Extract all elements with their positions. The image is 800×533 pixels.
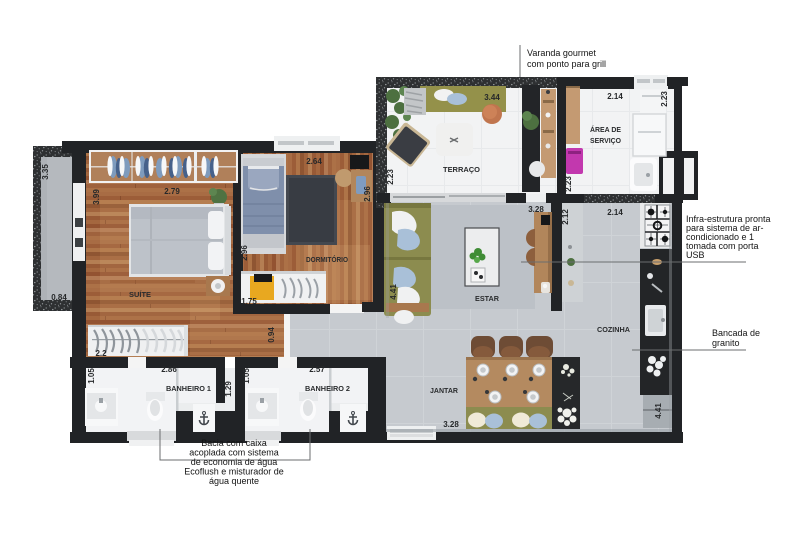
svg-text:2.86: 2.86 bbox=[161, 365, 177, 374]
svg-text:3.28: 3.28 bbox=[528, 205, 544, 214]
svg-text:acoplada com sistema: acoplada com sistema bbox=[189, 448, 279, 458]
svg-text:2.96: 2.96 bbox=[363, 186, 372, 202]
svg-text:4.41: 4.41 bbox=[389, 284, 398, 300]
svg-text:JANTAR: JANTAR bbox=[430, 386, 459, 395]
svg-text:2.57: 2.57 bbox=[309, 365, 325, 374]
svg-text:Bancada de: Bancada de bbox=[712, 328, 760, 338]
svg-text:3.99: 3.99 bbox=[92, 189, 101, 205]
svg-text:USB: USB bbox=[686, 250, 705, 260]
svg-text:SERVIÇO: SERVIÇO bbox=[590, 136, 621, 145]
svg-text:4.41: 4.41 bbox=[654, 403, 663, 419]
svg-text:2.79: 2.79 bbox=[164, 187, 180, 196]
svg-text:2.96: 2.96 bbox=[240, 245, 249, 261]
svg-text:ESTAR: ESTAR bbox=[475, 294, 500, 303]
svg-text:COZINHA: COZINHA bbox=[597, 325, 631, 334]
svg-text:com ponto para grill: com ponto para grill bbox=[527, 59, 606, 69]
svg-text:2.2: 2.2 bbox=[95, 349, 107, 358]
svg-text:Bacia com caixa: Bacia com caixa bbox=[201, 438, 267, 448]
svg-text:TERRAÇO: TERRAÇO bbox=[443, 165, 480, 174]
svg-text:2.14: 2.14 bbox=[607, 92, 623, 101]
svg-text:Ecoflush e misturador de: Ecoflush e misturador de bbox=[184, 467, 284, 477]
svg-text:0.84: 0.84 bbox=[51, 293, 67, 302]
svg-text:1.05: 1.05 bbox=[242, 368, 251, 384]
svg-text:1.05: 1.05 bbox=[87, 368, 96, 384]
svg-text:0.94: 0.94 bbox=[267, 327, 276, 343]
svg-text:3.28: 3.28 bbox=[443, 420, 459, 429]
svg-text:2.23: 2.23 bbox=[564, 176, 573, 192]
svg-text:2.23: 2.23 bbox=[660, 91, 669, 107]
svg-text:granito: granito bbox=[712, 338, 740, 348]
svg-text:BANHEIRO 1: BANHEIRO 1 bbox=[166, 384, 211, 393]
svg-text:SUÍTE: SUÍTE bbox=[129, 290, 151, 299]
svg-text:2.23: 2.23 bbox=[386, 169, 395, 185]
svg-text:1.29: 1.29 bbox=[224, 381, 233, 397]
svg-text:Varanda gourmet: Varanda gourmet bbox=[527, 48, 596, 58]
svg-text:BANHEIRO 2: BANHEIRO 2 bbox=[305, 384, 350, 393]
svg-text:DORMITÓRIO: DORMITÓRIO bbox=[306, 255, 348, 264]
svg-text:1.75: 1.75 bbox=[241, 297, 257, 306]
svg-text:3.35: 3.35 bbox=[41, 164, 50, 180]
svg-text:de economia de água: de economia de água bbox=[191, 457, 278, 467]
svg-text:2.14: 2.14 bbox=[607, 208, 623, 217]
svg-text:água quente: água quente bbox=[209, 476, 259, 486]
svg-text:ÁREA DE: ÁREA DE bbox=[590, 125, 621, 134]
svg-text:2.64: 2.64 bbox=[306, 157, 322, 166]
svg-text:2.12: 2.12 bbox=[561, 209, 570, 225]
svg-text:3.44: 3.44 bbox=[484, 93, 500, 102]
